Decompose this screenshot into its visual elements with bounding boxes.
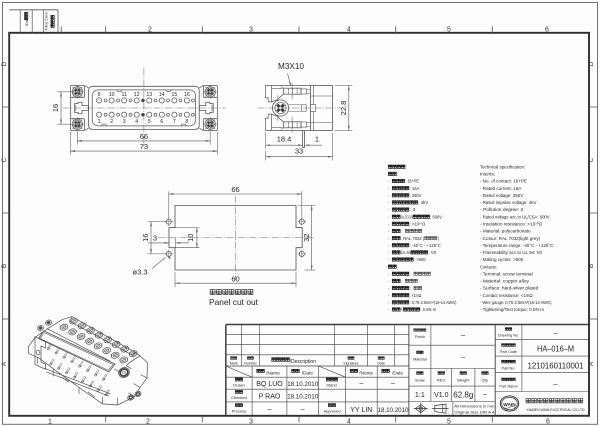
svg-text:- Rated voltage acc.to UL/CSA: - Rated voltage acc.to UL/CSA: 600V — [480, 214, 550, 219]
svg-text:V1.0: V1.0 — [434, 392, 449, 399]
svg-text:- Contact resistance: <1mΩ: - Contact resistance: <1mΩ — [480, 293, 533, 298]
svg-text:A: A — [588, 361, 595, 366]
svg-text:Original Size DIN A 4: Original Size DIN A 4 — [454, 409, 495, 414]
svg-text:16: 16 — [51, 104, 60, 112]
svg-text:18.4: 18.4 — [277, 135, 292, 144]
svg-text:Technical specification:: Technical specification: — [480, 164, 525, 169]
svg-text:: <1mΩ: : <1mΩ — [410, 293, 422, 298]
svg-text:/Description: /Description — [290, 359, 317, 365]
svg-text:4: 4 — [347, 27, 351, 34]
svg-text:C: C — [588, 157, 595, 162]
svg-text:3: 3 — [249, 27, 253, 34]
svg-text:A: A — [1, 361, 8, 366]
svg-text:3: 3 — [249, 419, 253, 426]
svg-text:Stand.: Stand. — [326, 383, 338, 388]
svg-text:10: 10 — [109, 92, 115, 98]
svg-text:- Flammability acc.to UL 94:: - Flammability acc.to UL 94: V0 — [480, 250, 543, 255]
svg-text:16: 16 — [184, 92, 190, 98]
svg-text:ø3.3: ø3.3 — [132, 268, 147, 277]
svg-text:Qty.: Qty. — [481, 377, 488, 382]
svg-text:: -40°C - +125°C: : -40°C - +125°C — [410, 243, 441, 248]
svg-text:: 16+PE: : 16+PE — [405, 179, 419, 184]
svg-text:- Insulation resistance: >10: - Insulation resistance: >10¹⁰Ω — [480, 221, 543, 226]
svg-text:Process: Process — [232, 408, 246, 413]
svg-text:9: 9 — [98, 92, 101, 98]
svg-text:–: – — [301, 407, 305, 414]
svg-text:73: 73 — [140, 142, 148, 151]
svg-text:M3X10: M3X10 — [278, 62, 304, 71]
svg-text::: : — [397, 172, 398, 177]
svg-text:- Material: copper alloy: - Material: copper alloy — [480, 279, 530, 284]
svg-text:: >10¹⁰Ω: : >10¹⁰Ω — [410, 221, 426, 226]
svg-text:Filing Clerk: Filing Clerk — [45, 12, 49, 30]
svg-text:10: 10 — [186, 234, 195, 242]
svg-text:- Surface: hard-silver plate: - Surface: hard-silver plated — [480, 286, 539, 291]
svg-text:- Material: polycarbonate: - Material: polycarbonate — [480, 229, 531, 234]
svg-text:UL 94: UL 94 — [401, 250, 411, 255]
svg-text:3: 3 — [123, 119, 126, 125]
svg-text:6: 6 — [545, 27, 549, 34]
svg-text:62.8g: 62.8g — [453, 390, 473, 399]
svg-text:18.10.2010: 18.10.2010 — [287, 393, 319, 400]
svg-text:: 3: : 3 — [410, 207, 417, 212]
svg-text:P RAO: P RAO — [259, 394, 281, 401]
svg-text:33: 33 — [295, 146, 303, 155]
svg-text::: : — [397, 264, 398, 269]
svg-text:22.8: 22.8 — [339, 101, 348, 116]
svg-text:: >500: : >500 — [414, 257, 426, 262]
svg-text:–: – — [359, 380, 363, 387]
svg-text:Part Code: Part Code — [500, 350, 517, 354]
svg-text:BQ LUO: BQ LUO — [256, 381, 283, 388]
svg-text:–: – — [268, 407, 272, 414]
svg-text:Approved: Approved — [323, 408, 340, 413]
svg-text:7: 7 — [173, 119, 176, 125]
svg-text:YY LIN: YY LIN — [350, 407, 372, 414]
svg-text:- Rated current: 16A: - Rated current: 16A — [480, 186, 521, 191]
svg-text:: 250V: : 250V — [410, 193, 422, 198]
svg-text:1210160110001: 1210160110001 — [528, 362, 585, 371]
svg-text:Weight: Weight — [457, 377, 470, 382]
svg-text:D: D — [588, 61, 595, 66]
svg-text:- Wire gauge: 0.75-2.5mm²(18: - Wire gauge: 0.75-2.5mm²(18-14 AWG) — [480, 300, 552, 305]
svg-text:6: 6 — [160, 119, 163, 125]
svg-text:5: 5 — [148, 119, 151, 125]
svg-text:4: 4 — [347, 419, 351, 426]
svg-text:1: 1 — [98, 119, 101, 125]
svg-text:: 16A: : 16A — [410, 186, 420, 191]
svg-text:: 4kV: : 4kV — [418, 200, 428, 205]
svg-text:: 600V: : 600V — [430, 214, 442, 219]
svg-text:B: B — [588, 264, 595, 268]
svg-text:18.10.2010: 18.10.2010 — [287, 381, 319, 388]
svg-text:15: 15 — [171, 92, 177, 98]
svg-text:Date: Date — [377, 362, 385, 366]
svg-text:- Temperature range: -40°C: - Temperature range: -40°C - +125°C — [480, 243, 553, 248]
svg-text:12: 12 — [134, 92, 140, 98]
svg-text:Part No.: Part No. — [502, 366, 516, 370]
svg-text:–: – — [391, 380, 395, 387]
svg-text:/Date: /Date — [24, 16, 29, 26]
svg-text:- Mating cycles: >500: - Mating cycles: >500 — [480, 257, 524, 262]
svg-text::: : — [410, 271, 411, 276]
svg-text::: : — [410, 286, 411, 291]
svg-text::: : — [406, 164, 407, 169]
svg-text:D: D — [1, 61, 8, 66]
svg-text:UL/CSA: UL/CSA — [401, 214, 413, 219]
svg-text:Drawn: Drawn — [233, 383, 245, 388]
svg-text:XIAMEN WAIN ELECTRICAL CO.LTD: XIAMEN WAIN ELECTRICAL CO.LTD — [527, 408, 585, 412]
svg-text:- Pollution degree: 3: - Pollution degree: 3 — [480, 207, 524, 212]
svg-text:: V0: : V0 — [428, 250, 436, 255]
svg-text:Contacts:: Contacts: — [480, 264, 497, 269]
svg-text:1:1: 1:1 — [415, 390, 425, 399]
svg-text:- Colour: RAL 7032(light gre: - Colour: RAL 7032(light grey) — [480, 236, 541, 241]
svg-text::: : — [401, 279, 402, 284]
svg-text:Scale: Scale — [415, 377, 426, 382]
svg-text:Drawing No.: Drawing No. — [498, 334, 519, 338]
svg-text:Part Name: Part Name — [499, 384, 517, 388]
svg-text:66: 66 — [140, 132, 148, 141]
svg-text:Number: Number — [244, 362, 258, 366]
svg-text:2: 2 — [148, 27, 152, 34]
svg-text:Panel cut out: Panel cut out — [209, 297, 259, 307]
svg-text:1: 1 — [315, 135, 319, 144]
svg-text:Checked: Checked — [231, 395, 247, 400]
svg-text:2: 2 — [110, 119, 113, 125]
svg-text:/Date: /Date — [392, 370, 403, 375]
svg-text:11: 11 — [121, 92, 126, 98]
svg-text:/Nome: /Nome — [359, 370, 373, 375]
svg-text:8: 8 — [185, 119, 188, 125]
svg-text:: 0.75-2.5mm²(18-14 AWG): : 0.75-2.5mm²(18-14 AWG) — [410, 300, 457, 305]
svg-text:32: 32 — [302, 234, 311, 242]
svg-text:HA–016–M: HA–016–M — [537, 345, 574, 354]
svg-text:- Rated voltage: 250V: - Rated voltage: 250V — [480, 193, 523, 198]
svg-text:18.10.2010: 18.10.2010 — [378, 407, 410, 414]
svg-text:- Tightening/Test torque: 0.: - Tightening/Test torque: 0.5N·m — [480, 307, 544, 312]
svg-text:4: 4 — [135, 119, 138, 125]
svg-text:60: 60 — [231, 274, 239, 283]
svg-text:Mark: Mark — [230, 362, 238, 366]
svg-text:5: 5 — [447, 419, 451, 426]
svg-text:/Date: /Date — [302, 370, 313, 375]
svg-text:6: 6 — [546, 419, 550, 426]
svg-text:66: 66 — [231, 185, 239, 194]
svg-text:C: C — [1, 157, 8, 162]
svg-text:2: 2 — [146, 419, 150, 426]
svg-text:: 0.5N·m: : 0.5N·m — [421, 307, 437, 312]
svg-text:/Name: /Name — [266, 370, 280, 375]
svg-text:Finish: Finish — [415, 335, 425, 339]
svg-text:- Terminal: screw terminal: - Terminal: screw terminal — [480, 271, 533, 276]
svg-text:- Rated impulse voltage: 4kV: - Rated impulse voltage: 4kV — [480, 200, 536, 205]
svg-text:16: 16 — [141, 234, 150, 242]
svg-text::: : — [401, 229, 402, 234]
svg-text:Signature: Signature — [343, 362, 358, 366]
svg-text:5: 5 — [447, 27, 451, 34]
svg-text:Inserts:: Inserts: — [480, 172, 495, 177]
svg-text:3: 3 — [153, 233, 157, 242]
svg-text:13: 13 — [146, 92, 152, 98]
svg-text:14: 14 — [159, 92, 165, 98]
svg-text:B: B — [1, 264, 8, 268]
svg-text:REV.: REV. — [437, 377, 446, 382]
svg-text:–: – — [483, 391, 487, 398]
svg-text:- No. of contact: 16+PE: - No. of contact: 16+PE — [480, 179, 527, 184]
svg-text:Material: Material — [413, 357, 427, 361]
svg-text:: RAL 7032 (: : RAL 7032 ( — [401, 236, 425, 241]
svg-text:1: 1 — [48, 419, 52, 426]
svg-text:All Dimensions in mm: All Dimensions in mm — [454, 404, 494, 409]
